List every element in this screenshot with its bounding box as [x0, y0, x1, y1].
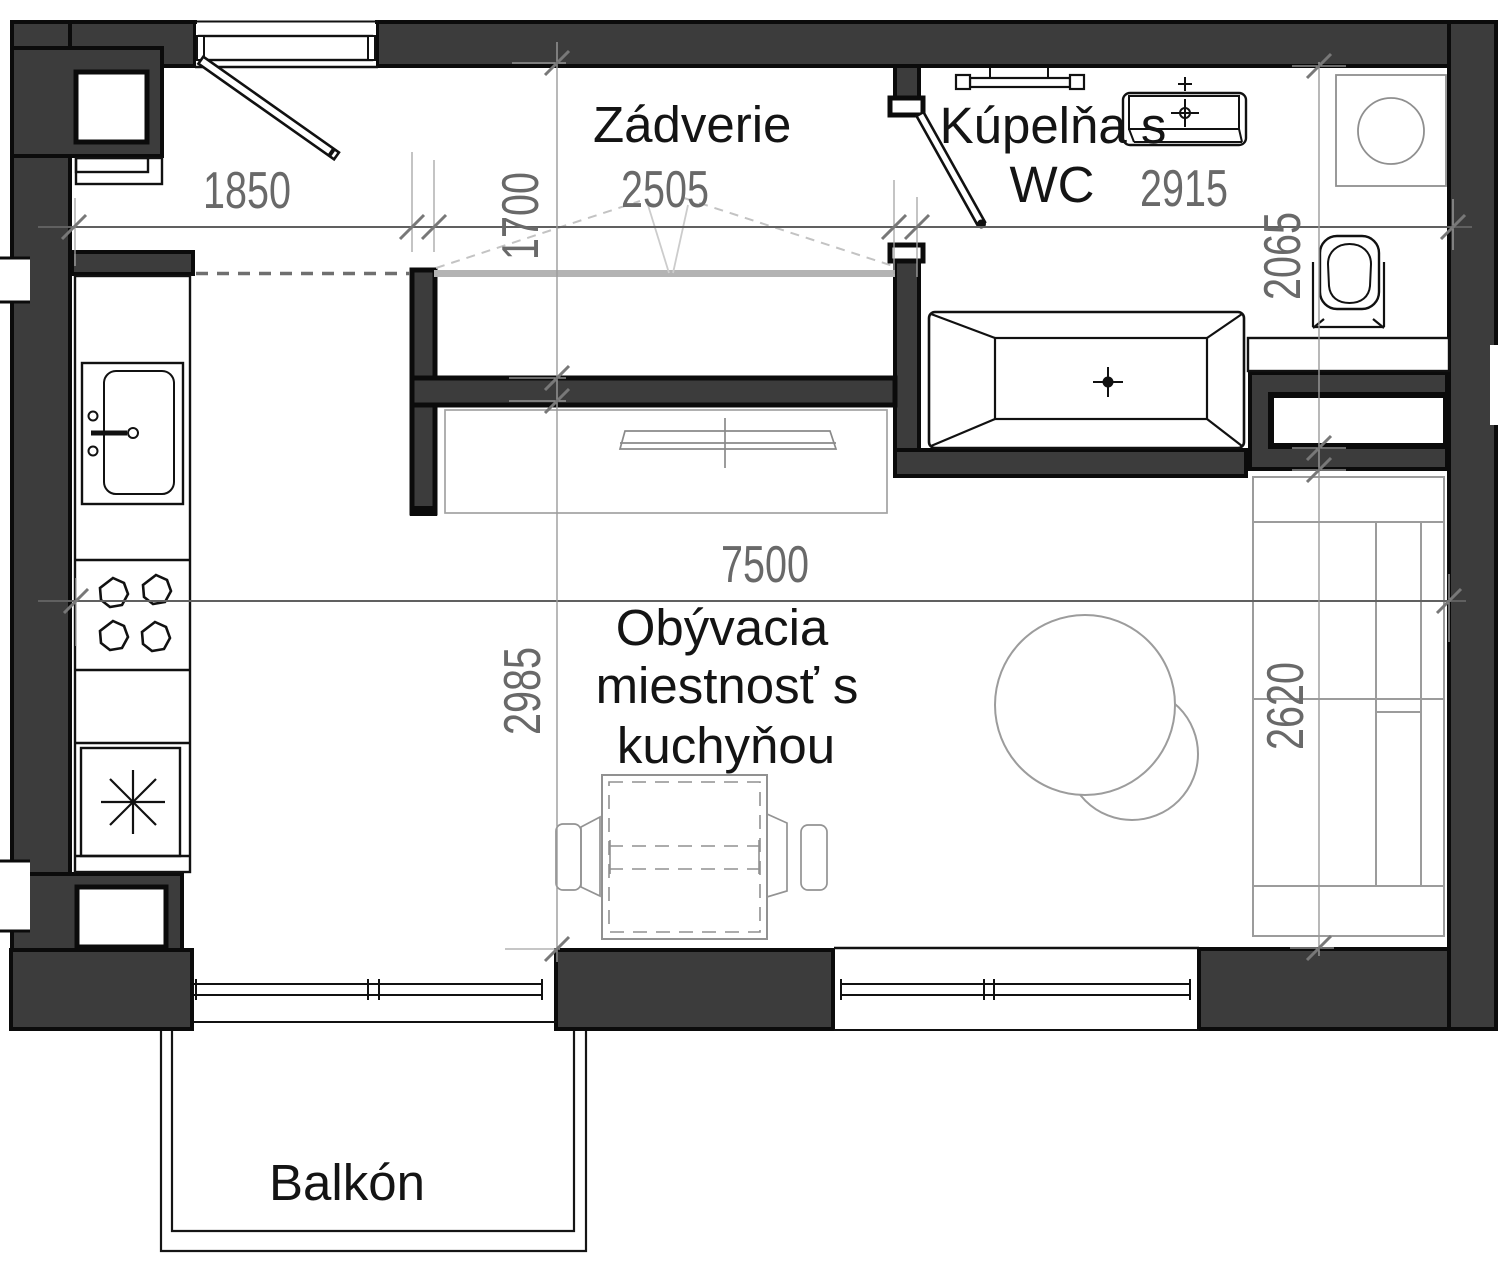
- svg-text:2620: 2620: [1256, 662, 1315, 750]
- svg-text:1850: 1850: [203, 161, 291, 220]
- svg-text:Kúpelňa s: Kúpelňa s: [940, 97, 1167, 154]
- svg-text:2915: 2915: [1140, 159, 1228, 218]
- svg-text:miestnosť s: miestnosť s: [596, 657, 859, 714]
- svg-text:7500: 7500: [721, 535, 809, 594]
- svg-text:2505: 2505: [621, 160, 709, 219]
- svg-text:WC: WC: [1010, 156, 1095, 213]
- svg-text:Obývacia: Obývacia: [616, 599, 829, 656]
- svg-text:2065: 2065: [1253, 212, 1312, 300]
- svg-text:kuchyňou: kuchyňou: [617, 717, 835, 774]
- svg-text:1700: 1700: [491, 172, 550, 260]
- svg-text:Balkón: Balkón: [269, 1154, 425, 1211]
- svg-text:Zádverie: Zádverie: [593, 96, 791, 153]
- svg-text:2985: 2985: [493, 647, 552, 735]
